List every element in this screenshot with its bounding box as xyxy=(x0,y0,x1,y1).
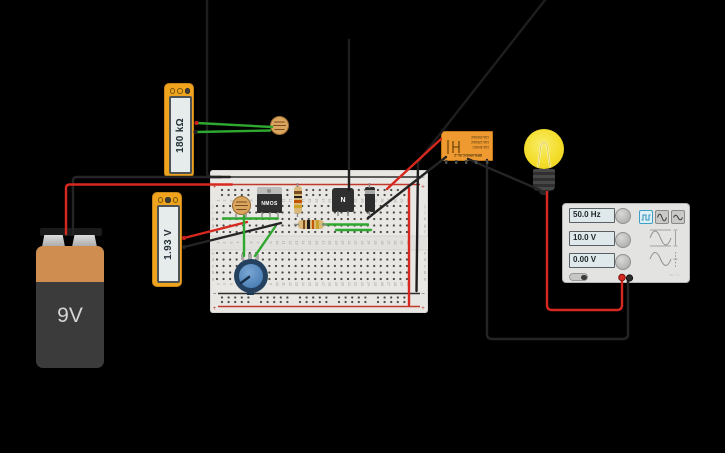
row-letter: h xyxy=(424,217,427,222)
row-letter: d xyxy=(424,257,427,262)
column-number: 18 xyxy=(327,199,331,203)
row-letter: a xyxy=(212,277,215,282)
multimeter-display: 1.93 V xyxy=(157,205,180,283)
frequency-display: 50.0 Hz xyxy=(569,208,615,223)
column-number: 27 xyxy=(386,241,390,245)
row-letter: i xyxy=(425,210,426,215)
column-number: 29 xyxy=(399,241,403,245)
row-letter: e xyxy=(212,251,215,256)
column-number: 11 xyxy=(282,199,286,203)
column-number: 5 xyxy=(242,242,246,244)
relay[interactable]: 10A 250VAC 10A 125VAC 10A 30VDC SRD-05VD… xyxy=(441,131,493,161)
column-number: 26 xyxy=(380,282,384,286)
column-number: 15 xyxy=(308,282,312,286)
resistor-band xyxy=(294,205,302,208)
column-number: 14 xyxy=(301,241,305,245)
mode-button-ohms[interactable] xyxy=(173,197,179,203)
mode-button-amps[interactable] xyxy=(170,88,176,94)
brand-logo-icon: ⎓ ∿ xyxy=(669,273,679,280)
amplitude-display: 10.0 V xyxy=(569,231,615,246)
resistor-band xyxy=(294,191,302,194)
column-number: 24 xyxy=(367,282,371,286)
column-number: 20 xyxy=(340,282,344,286)
svg-text:+: + xyxy=(421,306,425,312)
nmos-transistor[interactable]: NMOS xyxy=(257,187,282,213)
column-number: 1 xyxy=(216,283,220,285)
battery-label: 9V xyxy=(36,304,104,328)
mode-button-volts[interactable] xyxy=(177,88,183,94)
row-letter: g xyxy=(212,223,215,228)
row-letter: c xyxy=(424,264,426,269)
column-number: 22 xyxy=(354,199,358,203)
row-letter: d xyxy=(212,257,215,262)
row-letter: i xyxy=(213,210,214,215)
column-number: 28 xyxy=(393,282,397,286)
bulb-contact-tip xyxy=(539,190,549,195)
bulb-screw-base xyxy=(533,169,555,191)
resistor-horizontal[interactable] xyxy=(298,220,324,229)
row-letter: h xyxy=(212,217,215,222)
column-number: 20 xyxy=(340,241,344,245)
column-number: 2 xyxy=(223,242,227,244)
wire-ohmmeter-probe-b[interactable] xyxy=(196,131,270,133)
row-letter: j xyxy=(424,204,426,209)
column-number: 15 xyxy=(308,241,312,245)
column-number: 27 xyxy=(386,282,390,286)
frequency-knob[interactable] xyxy=(615,208,631,224)
probe-tip-black[interactable] xyxy=(193,130,197,134)
relay-rating: 10A 30VDC xyxy=(459,145,489,149)
column-number: 6 xyxy=(249,242,253,244)
column-number: 21 xyxy=(347,282,351,286)
column-number: 30 xyxy=(406,241,410,245)
svg-text:−: − xyxy=(213,292,217,298)
resistor-band xyxy=(312,220,315,229)
svg-text:+: + xyxy=(421,185,425,191)
relay-model: SRD-05VDC-SL-C xyxy=(448,153,488,157)
light-bulb[interactable] xyxy=(524,129,564,169)
column-number: 23 xyxy=(360,199,364,203)
column-number: 21 xyxy=(347,241,351,245)
battery-cap xyxy=(40,228,102,236)
npn-transistor[interactable]: N xyxy=(332,188,354,212)
column-number: 13 xyxy=(295,282,299,286)
column-number: 10 xyxy=(275,282,279,286)
column-number: 17 xyxy=(321,282,325,286)
column-number: 28 xyxy=(393,199,397,203)
column-number: 12 xyxy=(288,282,292,286)
column-number: 23 xyxy=(360,241,364,245)
waveform-button-triangle[interactable] xyxy=(671,210,685,224)
wire-ohmmeter-probe-a[interactable] xyxy=(197,123,272,127)
column-number: 17 xyxy=(321,199,325,203)
multimeter-mode-buttons xyxy=(165,87,193,94)
multimeter-reading: 180 kΩ xyxy=(175,118,186,153)
column-number: 29 xyxy=(399,199,403,203)
column-number: 15 xyxy=(308,199,312,203)
row-letter: a xyxy=(424,277,427,282)
column-number: 1 xyxy=(216,242,220,244)
row-letter: j xyxy=(212,204,214,209)
relay-rating: 10A 125VAC xyxy=(459,140,489,144)
column-number: 14 xyxy=(301,199,305,203)
multimeter-voltage[interactable]: 1.93 V xyxy=(152,192,182,287)
resistor-band xyxy=(307,220,310,229)
diode[interactable] xyxy=(365,187,375,212)
row-letter: b xyxy=(424,270,427,275)
photoresistor-icon[interactable] xyxy=(232,196,251,215)
probe-tip-red[interactable] xyxy=(182,236,186,240)
column-number: 7 xyxy=(255,242,259,244)
mode-button-amps[interactable] xyxy=(158,197,164,203)
power-toggle[interactable] xyxy=(569,273,588,281)
relay-rating: 10A 250VAC xyxy=(459,135,489,139)
column-number: 29 xyxy=(399,282,403,286)
column-number: 23 xyxy=(360,282,364,286)
column-number: 16 xyxy=(314,282,318,286)
column-number: 18 xyxy=(327,241,331,245)
waveform-button-square[interactable] xyxy=(639,210,653,224)
column-number: 30 xyxy=(406,199,410,203)
column-number: 26 xyxy=(380,199,384,203)
offset-display: 0.00 V xyxy=(569,253,615,268)
toggle-knob-icon xyxy=(581,275,587,281)
mode-button-volts[interactable] xyxy=(165,197,171,203)
resistor-band xyxy=(303,220,306,229)
waveform-button-sine[interactable] xyxy=(655,210,669,224)
battery-9v[interactable]: 9V xyxy=(36,246,104,368)
svg-text:−: − xyxy=(213,175,217,181)
row-letter: f xyxy=(212,230,214,235)
column-number: 19 xyxy=(334,241,338,245)
column-number: 11 xyxy=(282,241,286,245)
column-number: 11 xyxy=(282,282,286,286)
circuit-canvas: 9V 180 kΩ 1.93 V −−−−++++jjiihhggffeeddc… xyxy=(0,0,725,453)
column-number: 2 xyxy=(223,200,227,202)
column-number: 28 xyxy=(393,241,397,245)
amplitude-knob[interactable] xyxy=(615,232,631,248)
column-number: 17 xyxy=(321,241,325,245)
probe-tip-red[interactable] xyxy=(194,121,198,125)
row-letter: b xyxy=(212,270,215,275)
column-number: 25 xyxy=(373,282,377,286)
column-number: 25 xyxy=(373,241,377,245)
offset-diagram-icon xyxy=(649,250,679,269)
potentiometer-pointer-icon xyxy=(234,259,268,293)
row-letter: c xyxy=(212,264,214,269)
diode-cathode-stripe xyxy=(365,190,375,194)
column-number: 19 xyxy=(334,282,338,286)
function-generator[interactable]: 50.0 Hz 10.0 V 0.00 V ⎓ ∿ xyxy=(562,203,690,283)
column-number: 9 xyxy=(268,242,272,244)
column-number: 22 xyxy=(354,241,358,245)
battery-band xyxy=(36,246,104,282)
multimeter-mode-buttons xyxy=(153,196,181,203)
multimeter-reading: 1.93 V xyxy=(163,229,174,260)
column-number: 16 xyxy=(314,199,318,203)
row-letter: f xyxy=(424,230,426,235)
nmos-package: NMOS xyxy=(257,194,282,213)
column-number: 16 xyxy=(314,241,318,245)
column-number: 4 xyxy=(236,242,240,244)
svg-text:+: + xyxy=(213,185,217,191)
multimeter-display: 180 kΩ xyxy=(169,96,192,174)
column-number: 8 xyxy=(262,242,266,244)
bulb-filament-icon xyxy=(524,129,564,169)
multimeter-resistance[interactable]: 180 kΩ xyxy=(164,83,194,178)
row-letter: e xyxy=(424,251,427,256)
column-number: 10 xyxy=(275,241,279,245)
transistor-label: N xyxy=(340,197,345,204)
amplitude-diagram-icon xyxy=(649,227,679,249)
column-number: 13 xyxy=(295,241,299,245)
column-number: 9 xyxy=(268,283,272,285)
probe-tip-black[interactable] xyxy=(182,245,186,249)
resistor-band xyxy=(294,200,302,203)
svg-text:−: − xyxy=(421,175,425,181)
column-number: 3 xyxy=(229,283,233,285)
column-number: 12 xyxy=(288,199,292,203)
resistor-band xyxy=(294,196,302,199)
nmos-label: NMOS xyxy=(261,201,277,207)
wire-battery-positive[interactable] xyxy=(66,185,232,235)
mode-button-ohms[interactable] xyxy=(185,88,191,94)
column-number: 1 xyxy=(216,200,220,202)
column-number: 14 xyxy=(301,282,305,286)
photoresistor-icon[interactable] xyxy=(270,116,289,135)
column-number: 26 xyxy=(380,241,384,245)
mounting-hole-icon xyxy=(267,189,271,193)
column-number: 27 xyxy=(386,199,390,203)
offset-knob[interactable] xyxy=(615,254,631,270)
svg-text:−: − xyxy=(421,292,425,298)
wire-black-offscreen-top[interactable] xyxy=(207,0,221,177)
resistor-band xyxy=(316,220,319,229)
column-number: 22 xyxy=(354,282,358,286)
svg-text:+: + xyxy=(213,306,217,312)
column-number: 30 xyxy=(406,282,410,286)
column-number: 18 xyxy=(327,282,331,286)
column-number: 12 xyxy=(288,241,292,245)
column-number: 2 xyxy=(223,283,227,285)
column-number: 24 xyxy=(367,241,371,245)
row-letter: g xyxy=(424,223,427,228)
resistor-vertical[interactable] xyxy=(294,186,302,214)
column-number: 3 xyxy=(229,242,233,244)
